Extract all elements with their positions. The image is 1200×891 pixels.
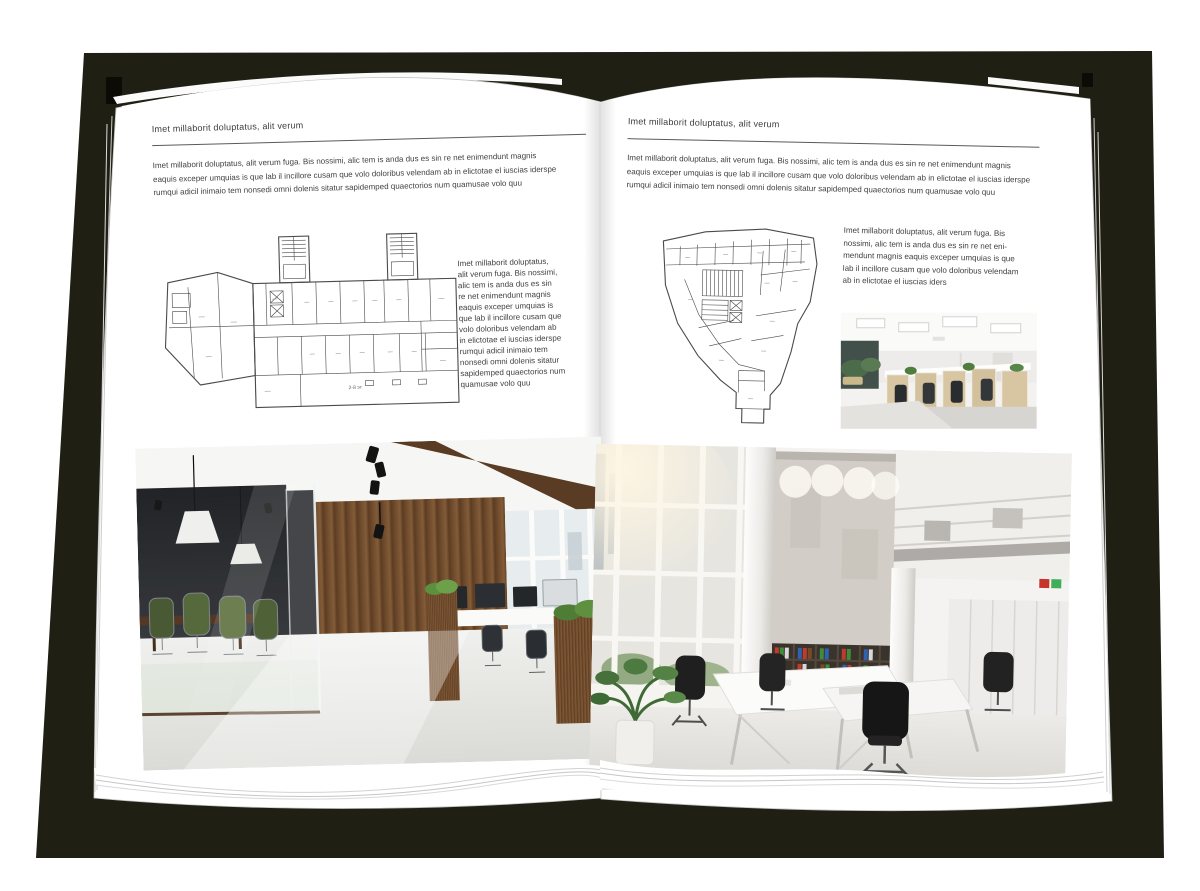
- polished-floor: [589, 706, 1067, 796]
- right-page-photo: [589, 444, 1072, 796]
- left-intro-paragraph: Imet millaborit doluptatus, alit verum f…: [153, 149, 557, 200]
- left-floor-plan: 2-й эт: [156, 220, 461, 420]
- floor-plan-annotation: 2-й эт: [349, 385, 363, 391]
- right-intro-paragraph: Imet millaborit doluptatus, alit verum f…: [626, 151, 1030, 200]
- right-page-small-photo: [841, 313, 1037, 429]
- left-header-rule: [152, 134, 586, 146]
- floor-plan-label-marks: [682, 249, 798, 399]
- right-page-header: Imet millaborit doluptatus, alit verum: [628, 116, 780, 129]
- left-page-header: Imet millaborit doluptatus, alit verum: [152, 120, 304, 134]
- cover-notch-right: [1082, 73, 1093, 87]
- left-page-photo: [135, 437, 609, 771]
- window-lounge: [841, 341, 881, 389]
- floor-plan-partitions: [663, 236, 811, 410]
- right-header-rule: [628, 138, 1040, 148]
- right-side-column: Imet millaborit doluptatus, alit verum f…: [842, 225, 1019, 291]
- floor-plan-label-marks: [198, 295, 446, 393]
- concrete-wall: [770, 451, 900, 646]
- left-page: Imet millaborit doluptatus, alit verum I…: [117, 86, 615, 798]
- magazine-mockup-scene: Imet millaborit doluptatus, alit verum I…: [0, 0, 1200, 891]
- right-page: Imet millaborit doluptatus, alit verum I…: [586, 96, 1095, 810]
- text-line: quamusae volo quu: [460, 376, 565, 390]
- floor-plan-outline: [660, 227, 818, 424]
- right-floor-plan: [642, 219, 842, 429]
- mezzanine-balcony: [891, 450, 1072, 582]
- left-side-column: Imet millaborit doluptatus,alit verum fu…: [457, 255, 565, 390]
